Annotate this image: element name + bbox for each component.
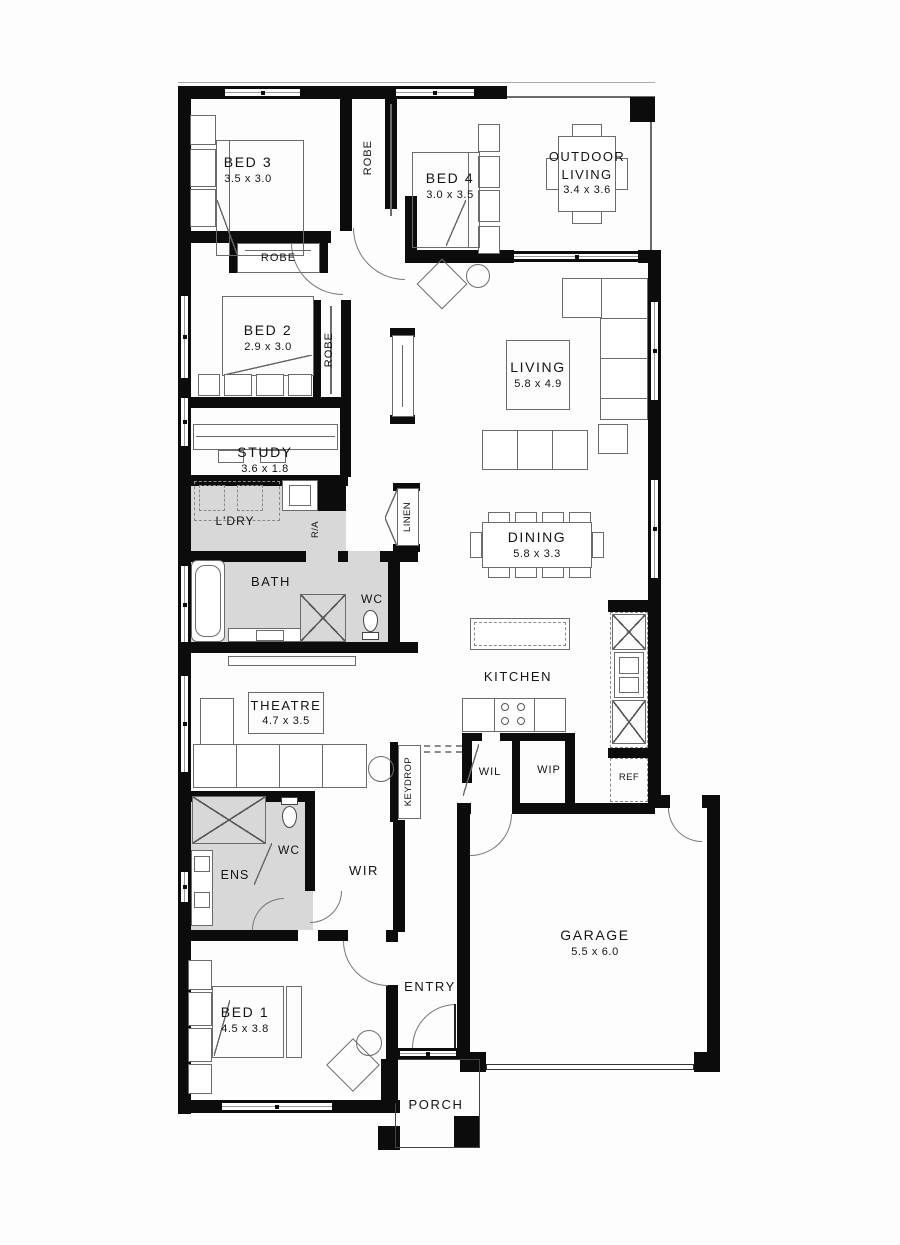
theatre-side-table [368, 756, 394, 782]
keydrop-label: KEYDROP [399, 747, 420, 817]
door-arc-front [412, 1004, 456, 1048]
ens-wc-tank [281, 797, 298, 805]
dining-label: DINING 5.8 x 3.3 [482, 522, 592, 568]
burner-2 [517, 703, 525, 711]
keydrop-text: KEYDROP [403, 757, 416, 806]
outdoor-living-label: OUTDOOR LIVING 3.4 x 3.6 [532, 144, 642, 202]
entry-threshold [400, 1048, 456, 1059]
wall-robe-bed2-r [341, 300, 351, 400]
wall-garage-right [707, 795, 720, 1070]
robe-top-label: ROBE [352, 104, 385, 212]
bed3-dims: 3.5 x 3.0 [224, 172, 272, 187]
bed1-ottoman [286, 986, 302, 1058]
bed2-dims: 2.9 x 3.0 [244, 340, 292, 355]
living-name: LIVING [510, 358, 566, 377]
cooktop-div1 [494, 699, 495, 731]
study-desk-line [196, 436, 335, 437]
robe-bed3-label: ROBE [237, 243, 320, 273]
door-arc-garage-entry [470, 814, 512, 856]
bed3-side-3 [190, 189, 216, 227]
outdoor-name: OUTDOOR LIVING [541, 148, 633, 183]
kitchen-island-inner [474, 622, 566, 646]
wall-house-garage-a [457, 803, 471, 814]
wc-toilet-tank [362, 632, 379, 640]
robe-bed2-label: ROBE [316, 304, 342, 396]
robe-bed2-text: ROBE [322, 332, 337, 367]
wall-garage-top-a [655, 795, 670, 808]
bathtub-inner [195, 565, 221, 637]
bed3-side-1 [190, 115, 216, 145]
wall-ens-bottom [178, 930, 298, 941]
cooktop-div2 [534, 699, 535, 731]
bed2-label: BED 2 2.9 x 3.0 [225, 318, 311, 358]
window-living [648, 302, 661, 400]
study-label: STUDY 3.6 x 1.8 [200, 440, 330, 480]
dryer [237, 485, 263, 511]
window-bed2-b [178, 398, 191, 446]
robe-top-slider [390, 104, 392, 216]
wall-ldry-bottom-b [338, 551, 348, 562]
theatre-dims: 4.7 x 3.5 [262, 714, 310, 729]
wall-bed2-bottom [191, 397, 351, 408]
burner-1 [501, 703, 509, 711]
theatre-sofa-div3 [322, 745, 323, 787]
wall-garage-left [457, 803, 470, 1053]
corner-sofa-arm [562, 278, 602, 318]
wall-top-3 [474, 86, 507, 99]
outdoor-chair-bottom [572, 211, 602, 224]
ens-shower [192, 796, 266, 844]
ens-label: ENS [212, 866, 258, 884]
wall-alfresco-stub [500, 250, 514, 263]
garage-label: GARAGE 5.5 x 6.0 [540, 922, 650, 964]
sofa-div-1 [601, 318, 647, 319]
study-dims: 3.6 x 1.8 [241, 462, 289, 477]
dining-chair-left [470, 532, 482, 558]
bed2-head-2 [224, 374, 252, 396]
pantry-cabinet-bottom [612, 700, 646, 744]
wip-label: WIP [528, 762, 570, 778]
entry-text: ENTRY [404, 978, 456, 996]
pantry-cabinet-top [612, 614, 646, 650]
dining-chair-right [592, 532, 604, 558]
theatre-label: THEATRE 4.7 x 3.5 [248, 692, 324, 734]
bed1-side-1 [188, 960, 212, 990]
door-arc-garage-rear [668, 808, 702, 842]
wall-study-right [340, 397, 351, 477]
door-arc-bed4 [353, 228, 405, 280]
wall-wil-wip-top-b [500, 733, 575, 741]
window-bed2-a [178, 296, 191, 378]
ens-basin-1 [194, 856, 210, 872]
living-lamp [466, 264, 490, 288]
burner-4 [517, 717, 525, 725]
wc-main-text: WC [361, 591, 383, 607]
bed1-side-4 [188, 1064, 212, 1094]
ra-text: R/A [310, 521, 323, 538]
robe-top-text: ROBE [361, 140, 376, 175]
ens-basin-2 [194, 892, 210, 908]
sofa-div-2 [601, 358, 647, 359]
ldry-label: L'DRY [200, 512, 270, 530]
wall-house-garage-b [512, 803, 655, 814]
bed3-name: BED 3 [224, 153, 272, 172]
hall-dash-a [424, 745, 462, 747]
bed1-label: BED 1 4.5 x 3.8 [202, 1000, 288, 1040]
laundry-trough-bowl [289, 485, 311, 506]
living-sofa [482, 430, 588, 470]
bed3-fold [217, 200, 237, 254]
porch-label: PORCH [404, 1096, 468, 1114]
bed2-name: BED 2 [244, 321, 292, 340]
garage-dims: 5.5 x 6.0 [571, 945, 619, 960]
cooktop-bench [462, 698, 566, 732]
kitchen-label: KITCHEN [476, 668, 560, 686]
outdoor-chair-top [572, 124, 602, 137]
wc-ens-label: WC [270, 842, 308, 858]
porch-text: PORCH [409, 1096, 464, 1114]
wip-text: WIP [537, 763, 561, 778]
dining-dims: 5.8 x 3.3 [513, 547, 561, 562]
wall-wir-right [393, 820, 405, 932]
wall-top-2 [300, 86, 396, 99]
bed1-dims: 4.5 x 3.8 [221, 1022, 269, 1037]
bath-label: BATH [238, 572, 304, 592]
floor-plan: BED 3 3.5 x 3.0 ROBE BED 4 3.0 x 3.5 OUT… [0, 0, 900, 1245]
tv-corner-unit [417, 259, 468, 310]
linen-label: LINEN [398, 488, 418, 546]
bed1-side-table [356, 1030, 382, 1056]
living-ottoman [598, 424, 628, 454]
garage-door-line [486, 1064, 694, 1070]
kitchen-sink-bowl-2 [619, 677, 639, 693]
sofa-div-3 [601, 398, 647, 399]
washer [199, 485, 225, 511]
window-bed3 [225, 86, 300, 99]
bed4-side-1 [478, 124, 500, 152]
linen-bifold-b [385, 518, 397, 546]
wall-wir-bottom [318, 930, 348, 941]
wall-kitchen-bottom-stub [608, 748, 650, 758]
theatre-sofa-div2 [279, 745, 280, 787]
theatre-sofa [193, 744, 367, 788]
window-ens [178, 872, 191, 902]
wall-bath-bottom [178, 642, 418, 653]
theatre-chaise [200, 698, 234, 746]
window-bed4 [396, 86, 474, 99]
front-door-leaf [454, 1004, 456, 1048]
bed2-head-1 [198, 374, 220, 396]
burner-3 [501, 717, 509, 725]
wir-text: WIR [349, 862, 379, 880]
wil-text: WIL [479, 765, 502, 780]
bed2-head-4 [288, 374, 312, 396]
bath-cabinet [228, 656, 356, 666]
bed4-name: BED 4 [426, 169, 474, 188]
bed2-head-3 [256, 374, 284, 396]
garage-name: GARAGE [560, 926, 630, 945]
entry-label: ENTRY [400, 978, 460, 996]
hall-niche [392, 335, 414, 417]
garage-corner-right [694, 1052, 720, 1072]
alfresco-slider [514, 251, 640, 262]
outdoor-dims: 3.4 x 3.6 [563, 183, 611, 198]
ra-label: R/A [306, 512, 326, 548]
wall-wil-wip-mid [512, 733, 520, 803]
bed4-side-4 [478, 226, 500, 254]
bath-shower [300, 594, 346, 642]
window-bed1 [222, 1100, 332, 1113]
theatre-sofa-div1 [236, 745, 237, 787]
eave-line [178, 82, 655, 83]
keydrop-wall [390, 742, 398, 822]
bed4-label: BED 4 3.0 x 3.5 [406, 166, 494, 206]
wc-ens-text: WC [278, 842, 300, 858]
linen-bifold-a [385, 490, 397, 518]
ref-text: REF [619, 772, 639, 785]
ldry-text: L'DRY [215, 513, 254, 529]
living-sofa-div1 [517, 431, 518, 469]
window-dining [648, 480, 661, 578]
wall-wc2-right [305, 791, 315, 891]
alfresco-corner-pier [630, 97, 655, 122]
wall-kitchen-top-stub [608, 600, 650, 612]
wir-label: WIR [338, 862, 390, 880]
bed4-fold [446, 200, 466, 246]
bath-basin [256, 630, 284, 641]
door-arc-wc2 [310, 891, 342, 923]
window-bath [178, 566, 191, 644]
wall-bed1-right [386, 985, 398, 1103]
wil-label: WIL [470, 764, 510, 780]
theatre-name: THEATRE [251, 697, 322, 715]
wall-robe-top-left [340, 99, 352, 231]
living-sofa-div2 [552, 431, 553, 469]
bed2-fold [224, 355, 312, 375]
kitchen-text: KITCHEN [484, 668, 552, 686]
bed3-label: BED 3 3.5 x 3.0 [203, 150, 293, 190]
door-arc-bed1 [343, 941, 388, 986]
bed1-name: BED 1 [221, 1003, 269, 1022]
wall-wil-wip-top-a [462, 733, 482, 741]
ens-text: ENS [221, 867, 250, 884]
robe-bed3-text: ROBE [261, 251, 296, 266]
ref-label: REF [611, 770, 647, 786]
hall-dash-b [424, 751, 462, 753]
wc-main-label: WC [352, 590, 392, 608]
bath-text: BATH [251, 573, 291, 591]
hall-niche-line [402, 345, 403, 407]
bed4-dims: 3.0 x 3.5 [426, 188, 474, 203]
living-dims: 5.8 x 4.9 [514, 377, 562, 392]
kitchen-sink-bowl-1 [619, 657, 639, 674]
dining-name: DINING [508, 528, 567, 547]
study-name: STUDY [237, 443, 292, 462]
linen-text: LINEN [402, 502, 415, 532]
window-theatre [178, 676, 191, 772]
living-label: LIVING 5.8 x 4.9 [506, 340, 570, 410]
